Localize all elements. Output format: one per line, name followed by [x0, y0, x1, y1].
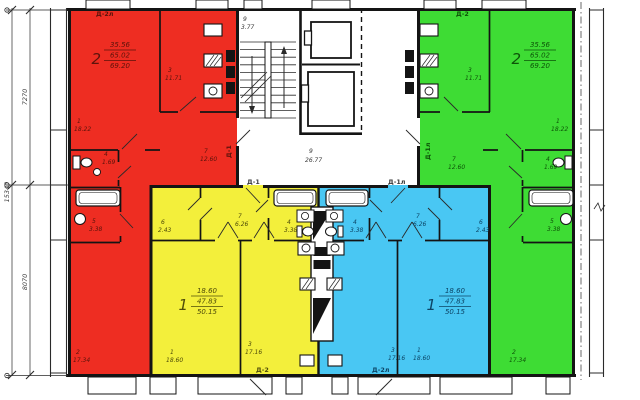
- room-area: 18.22: [551, 126, 568, 133]
- room-num: 4: [353, 219, 357, 226]
- room-num: 6: [161, 219, 165, 226]
- yellow-living-area: 18.60: [197, 287, 218, 295]
- blue-living-area: 18.60: [445, 287, 466, 295]
- room-area: 1.69: [102, 159, 116, 166]
- room-num: 4: [104, 151, 108, 158]
- room-num: 2: [512, 349, 516, 356]
- yellow-apartment-area: 47.83: [197, 298, 217, 306]
- kitchen-red: [204, 24, 222, 98]
- room-area: 12.60: [448, 164, 465, 171]
- room-area: 18.60: [166, 357, 183, 364]
- door-label-red-entry: Д-1: [225, 145, 233, 158]
- room-area: 6.26: [235, 221, 249, 228]
- room-area: 18.22: [74, 126, 91, 133]
- dimension-overall: 15340: [3, 182, 11, 203]
- room-area: 17.16: [388, 355, 405, 362]
- red-living-area: 35.56: [110, 41, 131, 49]
- door-label-blue-entry: Д-1л: [388, 178, 406, 186]
- washbasin-green-bath: [561, 214, 572, 225]
- room-area: 3.38: [89, 226, 103, 233]
- room-num: 7: [452, 156, 456, 163]
- room-num: 2: [76, 349, 80, 356]
- room-area: 3.38: [547, 226, 561, 233]
- green-living-area: 35.56: [530, 41, 551, 49]
- room-num: 4: [546, 156, 550, 163]
- dimension-upper: 7270: [21, 89, 29, 106]
- washbasin-red-bath: [75, 214, 86, 225]
- room-area: 12.60: [200, 156, 217, 163]
- yellow-type-label: 1: [178, 296, 188, 314]
- door-label-yellow-entry: Д-1: [247, 178, 260, 186]
- stair-room-num: 9: [243, 16, 247, 23]
- room-num: 1: [77, 118, 81, 125]
- door-label-green-top: Д-2: [456, 10, 469, 18]
- green-apartment-area: 65.02: [530, 52, 551, 60]
- apartment-blue-zone: [318, 185, 490, 377]
- blue-type-label: 1: [426, 296, 436, 314]
- corridor-num: 9: [309, 148, 313, 155]
- elevator-door-large: [302, 85, 309, 102]
- room-num: 5: [92, 218, 96, 225]
- room-area: 3.38: [350, 227, 364, 234]
- stair-stringer: [265, 42, 271, 118]
- elevator-car-small: [311, 22, 351, 58]
- door-label-red-top: Д-2л: [96, 10, 114, 18]
- room-num: 5: [550, 218, 554, 225]
- red-total-area: 69.20: [110, 62, 131, 70]
- room-num: 1: [556, 118, 560, 125]
- room-area: 3.38: [284, 227, 298, 234]
- door-label-green-entry: Д-1л: [424, 142, 432, 160]
- room-area: 17.16: [245, 349, 262, 356]
- elevator-door-small: [305, 31, 312, 45]
- room-num: 4: [287, 219, 291, 226]
- room-num: 7: [238, 213, 242, 220]
- room-num: 7: [204, 148, 208, 155]
- kitchen-green: [420, 24, 438, 98]
- dimension-lower: 8070: [21, 274, 29, 291]
- floor-plan-drawing: 7270 8070 15340 Д-2л Д-1 2 35.56 65.02 6…: [0, 0, 640, 400]
- blue-apartment-area: 47.83: [445, 298, 465, 306]
- room-area: 1.69: [544, 164, 558, 171]
- green-total-area: 69.20: [530, 62, 551, 70]
- room-area: 2.43: [158, 227, 172, 234]
- room-area: 17.34: [73, 357, 90, 364]
- elevator-car-large: [308, 72, 354, 126]
- room-area: 11.71: [165, 75, 182, 82]
- red-apartment-area: 65.02: [110, 52, 131, 60]
- apartment-yellow-zone: [150, 185, 318, 377]
- room-num: 3: [468, 67, 472, 74]
- room-area: 6.26: [413, 221, 427, 228]
- room-num: 3: [391, 347, 395, 354]
- room-num: 1: [170, 349, 174, 356]
- door-label-blue-balcony: Д-2л: [372, 366, 390, 374]
- corridor-area: 26.77: [305, 157, 322, 164]
- room-num: 1: [417, 347, 421, 354]
- room-area: 11.71: [465, 75, 482, 82]
- room-num: 6: [479, 219, 483, 226]
- room-num: 3: [168, 67, 172, 74]
- room-num: 7: [416, 213, 420, 220]
- room-area: 18.60: [413, 355, 430, 362]
- room-area: 17.34: [509, 357, 526, 364]
- room-num: 3: [248, 341, 252, 348]
- yellow-total-area: 50.15: [197, 308, 218, 316]
- green-type-label: 2: [511, 50, 521, 68]
- stair-room-area: 3.77: [241, 24, 255, 31]
- red-type-label: 2: [91, 50, 101, 68]
- floor-plan-svg: 7270 8070 15340 Д-2л Д-1 2 35.56 65.02 6…: [0, 0, 640, 400]
- blue-total-area: 50.15: [445, 308, 466, 316]
- door-label-yellow-balcony: Д-2: [256, 366, 269, 374]
- room-area: 2.43: [476, 227, 490, 234]
